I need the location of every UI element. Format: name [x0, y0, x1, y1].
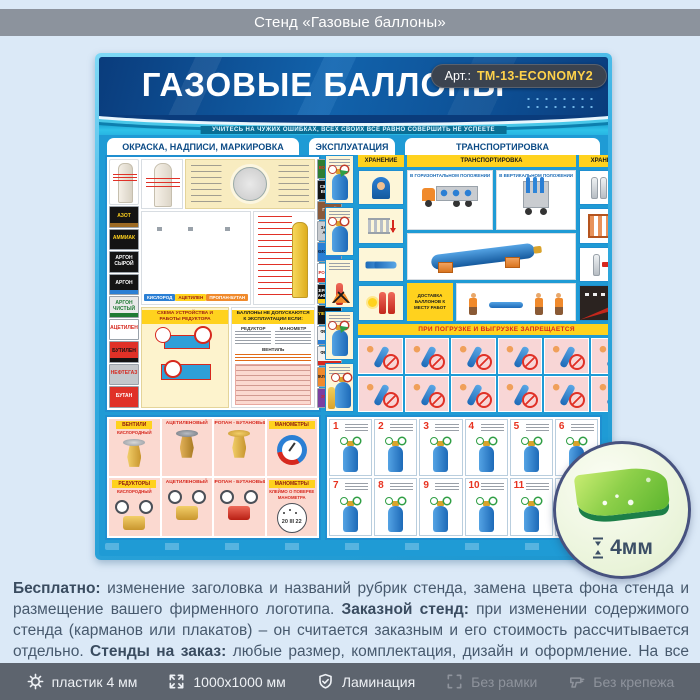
prohibition-cell	[544, 376, 589, 412]
gas-label-text: АРГОН ЧИСТЫЙ	[111, 301, 137, 313]
gas-label: БУТИЛЕН	[109, 341, 139, 363]
section-tabs: ОКРАСКА, НАДПИСИ, МАРКИРОВКА ЭКСПЛУАТАЦИ…	[99, 138, 608, 155]
step-caption-lines	[345, 483, 368, 491]
storage-panel	[579, 170, 608, 205]
cylinder-icon	[183, 231, 198, 293]
cylinder-icon	[220, 231, 235, 293]
cylinder-icon	[524, 506, 539, 532]
wood-block-icon	[438, 262, 453, 273]
gear-icon	[26, 672, 45, 691]
distance-arrow-icon	[392, 220, 394, 232]
step-panel: 5	[510, 419, 553, 477]
poster-motto: УЧИТЕСЬ НА ЧУЖИХ ОШИБКАХ, ВСЕХ СВОИХ ВСЁ…	[200, 126, 507, 134]
gas-label-stripe	[110, 380, 138, 384]
horizontal-title: В ГОРИЗОНТАЛЬНОМ ПОЛОЖЕНИИ	[410, 173, 490, 178]
passport-stamp-diagram	[185, 159, 315, 209]
thickness-icon	[591, 537, 605, 559]
inspection-diagram	[253, 211, 315, 305]
gas-label-stripe	[110, 245, 138, 249]
worker-icon	[534, 293, 543, 317]
gas-label-stripe	[110, 403, 138, 407]
operation-panel	[325, 207, 354, 256]
gas-label-text: АЗОТ	[117, 214, 131, 220]
cylinder-caption: АЦЕТИЛЕН	[175, 294, 206, 301]
cylinder-icon	[524, 446, 539, 472]
gas-label-text: НЕФТЕГАЗ	[111, 371, 138, 377]
step-caption-lines	[571, 424, 594, 432]
step-number: 1	[333, 421, 339, 432]
gas-label-text: БУТИЛЕН	[112, 349, 136, 355]
cylinder-caption: ПРОПАН-БУТАН	[206, 294, 248, 301]
step-number: 11	[514, 480, 525, 491]
scheme-title: СХЕМА УСТРОЙСТВА И РАБОТЫ РЕДУКТОРА	[142, 310, 228, 324]
storage-panel	[579, 208, 608, 243]
expand-icon	[167, 672, 186, 691]
equipment-title: АЦЕТИЛЕНОВЫЙ	[166, 480, 208, 485]
verification-stamp-icon: 20 III 22	[277, 503, 307, 533]
cylinder-on-blocks-row	[407, 233, 576, 280]
prohibition-cell	[591, 338, 608, 374]
cylinder-icon	[479, 446, 494, 472]
worker-icon	[469, 293, 478, 317]
poster-inner: ГАЗОВЫЕ БАЛЛОНЫ Арт.:ТМ-13-ECONOMY2 УЧИТ…	[99, 57, 608, 556]
cylinder-icon	[388, 506, 403, 532]
gas-label: АЦЕТИЛЕН	[109, 319, 139, 341]
step-panel: 2	[374, 419, 417, 477]
page-title: Стенд «Газовые баллоны»	[0, 9, 700, 36]
warning-lines	[235, 354, 310, 362]
gas-label-text: АРГОН СЫРОЙ	[111, 256, 137, 268]
step-number: 4	[469, 421, 475, 432]
rules-col-valve: ВЕНТИЛЬ	[262, 347, 284, 352]
step-caption-lines	[526, 483, 549, 491]
truck-icon	[422, 181, 478, 207]
vertical-transport-panel: В ВЕРТИКАЛЬНОМ ПОЛОЖЕНИИ	[496, 170, 576, 230]
step-caption-lines	[390, 424, 413, 432]
gas-label-text: АРГОН	[115, 281, 132, 287]
reducer-diagram-icon	[148, 326, 222, 405]
valve-icon	[177, 430, 197, 458]
gas-label-text: АММИАК	[113, 236, 135, 242]
cylinder-icon	[332, 226, 348, 252]
spec-mounting: Без крепежа	[567, 672, 674, 691]
thickness-value: 4мм	[610, 536, 653, 560]
gas-label-stripe	[110, 358, 138, 362]
cylinder-figure: АЦЕТИЛЕН	[175, 231, 206, 301]
gas-label-stripe	[110, 313, 138, 317]
step-number: 2	[378, 421, 384, 432]
storage-column-left	[358, 170, 404, 321]
vertical-title: В ВЕРТИКАЛЬНОМ ПОЛОЖЕНИИ	[499, 173, 573, 178]
equipment-subtitle: КЛЕЙМО О ПОВЕРКЕ МАНОМЕТРА	[267, 489, 318, 499]
equipment-subtitle: КИСЛОРОДНЫЙ	[117, 489, 152, 494]
equipment-panel-reducers: РЕДУКТОРЫ КИСЛОРОДНЫЙ	[109, 478, 160, 536]
cylinder-icon	[328, 387, 335, 409]
frame-corners-icon	[445, 672, 464, 691]
cylinder-icon	[600, 177, 607, 199]
step-number: 8	[378, 480, 384, 491]
spec-frame-label: Без рамки	[471, 674, 537, 690]
spec-lamination-label: Ламинация	[342, 674, 415, 690]
article-value: ТМ-13-ECONOMY2	[477, 69, 593, 83]
gas-label-stripe	[110, 335, 138, 339]
storage-bar-left: ХРАНЕНИЕ	[358, 155, 404, 167]
rules-col-manometer: МАНОМЕТР	[275, 326, 311, 331]
reducer-icon	[114, 500, 154, 530]
equipment-title: МАНОМЕТРЫ	[269, 421, 315, 429]
cylinder-dimensions-icon	[109, 159, 139, 205]
spec-material-label: пластик 4 мм	[52, 674, 138, 690]
drill-icon	[567, 672, 586, 691]
cylinder-inscription-icon	[141, 159, 183, 209]
cylinder-icon	[593, 254, 600, 276]
prohibition-cell	[451, 338, 496, 374]
cylinder-figure: КИСЛОРОД	[144, 231, 175, 301]
cylinder-on-blocks-panel	[407, 233, 576, 280]
tab-transportation: ТРАНСПОРТИРОВКА	[405, 138, 600, 155]
storage-panel	[358, 247, 404, 282]
cylinder-icon	[332, 330, 348, 356]
step-caption-lines	[435, 424, 458, 432]
storage-panel	[579, 247, 608, 282]
cylinder-types-row: КИСЛОРОД АЦЕТИЛЕН ПРОПАН-БУТ	[141, 211, 315, 305]
prohibition-cell	[358, 376, 403, 412]
forbidden-bar: ПРИ ПОГРУЗКЕ И ВЫГРУЗКЕ ЗАПРЕЩАЕТСЯ	[358, 324, 608, 335]
step-panel: 4	[465, 419, 508, 477]
cylinder-trio: КИСЛОРОД АЦЕТИЛЕН ПРОПАН-БУТ	[141, 211, 251, 305]
gas-label: АРГОН СЫРОЙ	[109, 251, 139, 273]
description-segment: Бесплатно:	[13, 580, 101, 597]
transport-bars: ХРАНЕНИЕ ТРАНСПОРТИРОВКА ХРАНЕНИЕ	[358, 155, 608, 167]
marking-row	[141, 159, 315, 209]
description-segment: Заказной стенд:	[342, 601, 469, 618]
delivery-row: ДОСТАВКА БАЛЛОНОВ К МЕСТУ РАБОТ	[407, 283, 576, 321]
reducer-icon	[167, 490, 207, 520]
step-caption-lines	[435, 483, 458, 491]
operation-panel	[325, 363, 354, 412]
cylinder-icon	[335, 382, 351, 408]
step-caption-lines	[481, 483, 504, 491]
step-panel: 8	[374, 478, 417, 536]
gas-label: АРГОН	[109, 274, 139, 296]
equipment-title: РЕДУКТОРЫ	[112, 480, 156, 488]
equipment-panel-acetylene-valve: АЦЕТИЛЕНОВЫЙ	[162, 419, 213, 477]
bottom-strip: ВЕНТИЛИ КИСЛОРОДНЫЙ АЦЕТИЛЕНОВЫЙ ПРОПАН …	[105, 415, 602, 540]
step-number: 5	[514, 421, 520, 432]
cylinder-icon	[375, 261, 397, 268]
cylinder-icon	[343, 506, 358, 532]
equipment-panel-stamp: МАНОМЕТРЫ КЛЕЙМО О ПОВЕРКЕ МАНОМЕТРА 20 …	[267, 478, 318, 536]
prohibition-cell	[405, 338, 450, 374]
stretcher-cylinder-icon	[489, 302, 523, 308]
operation-panel	[325, 259, 354, 308]
thickness-badge: 4мм	[553, 441, 691, 579]
rules-title: БАЛЛОНЫ НЕ ДОПУСКАЮТСЯ К ЭКСПЛУАТАЦИИ ЕС…	[232, 310, 314, 324]
transport-body: В ГОРИЗОНТАЛЬНОМ ПОЛОЖЕНИИ В ВЕРТИКАЛЬНО…	[358, 170, 608, 321]
spec-bar: пластик 4 мм 1000x1000 мм Ламинация Без …	[0, 663, 700, 700]
manometer-icon	[277, 435, 307, 465]
step-panel: 11	[510, 478, 553, 536]
step-panel: 10	[465, 478, 508, 536]
cylinder-icon	[433, 506, 448, 532]
gas-label-stripe	[110, 223, 138, 227]
scheme-rules-row: СХЕМА УСТРОЙСТВА И РАБОТЫ РЕДУКТОРА БАЛЛ…	[141, 307, 315, 408]
spec-lamination: Ламинация	[316, 672, 415, 691]
gas-label-text: БУТАН	[116, 394, 133, 400]
storage-panel	[358, 170, 404, 205]
workers-panel	[456, 283, 576, 321]
gas-label: АРГОН ЧИСТЫЙ	[109, 296, 139, 318]
pressure-table	[235, 364, 310, 405]
truck-row: В ГОРИЗОНТАЛЬНОМ ПОЛОЖЕНИИ В ВЕРТИКАЛЬНО…	[407, 170, 576, 230]
tab-operation: ЭКСПЛУАТАЦИЯ	[309, 138, 395, 155]
transport-center: В ГОРИЗОНТАЛЬНОМ ПОЛОЖЕНИИ В ВЕРТИКАЛЬНО…	[407, 170, 576, 321]
storage-bar-right: ХРАНЕНИЕ	[579, 155, 608, 167]
gas-label: НЕФТЕГАЗ	[109, 364, 139, 386]
gas-label-stripe	[110, 290, 138, 294]
step-caption-lines	[345, 424, 368, 432]
prohibition-cell	[451, 376, 496, 412]
rules-panel: БАЛЛОНЫ НЕ ДОПУСКАЮТСЯ К ЭКСПЛУАТАЦИИ ЕС…	[231, 307, 315, 408]
cylinder-figure: ПРОПАН-БУТАН	[206, 231, 248, 301]
equipment-title: АЦЕТИЛЕНОВЫЙ	[166, 421, 208, 426]
rules-columns: РЕДУКТОР МАНОМЕТР	[235, 326, 310, 345]
prohibition-cell	[498, 376, 543, 412]
radiator-icon	[368, 218, 390, 234]
step-panel: 1	[329, 419, 372, 477]
section-transport: ХРАНЕНИЕ ТРАНСПОРТИРОВКА ХРАНЕНИЕ	[358, 155, 608, 412]
cylinder-icon	[152, 231, 167, 293]
gas-labels-left: АЗОТ АММИАК АРГОН СЫРОЙ	[109, 159, 139, 408]
cylinder-icon	[388, 446, 403, 472]
valve-icon	[124, 439, 144, 467]
reducer-icon	[219, 490, 259, 520]
reducer-scheme-panel: СХЕМА УСТРОЙСТВА И РАБОТЫ РЕДУКТОРА	[141, 307, 229, 408]
step-number: 7	[333, 480, 339, 491]
crate-icon	[588, 214, 608, 238]
step-panel: 9	[419, 478, 462, 536]
cylinder-icon	[379, 292, 386, 314]
step-panel: 3	[419, 419, 462, 477]
spec-mounting-label: Без крепежа	[593, 674, 674, 690]
prohibition-cell	[405, 376, 450, 412]
step-caption-lines	[390, 483, 413, 491]
equipment-block: ВЕНТИЛИ КИСЛОРОДНЫЙ АЦЕТИЛЕНОВЫЙ ПРОПАН …	[105, 415, 321, 540]
header-swoosh: УЧИТЕСЬ НА ЧУЖИХ ОШИБКАХ, ВСЕХ СВОИХ ВСЁ…	[99, 115, 608, 135]
gas-label-stripe	[110, 268, 138, 272]
prohibition-grid	[358, 338, 608, 412]
step-number: 10	[469, 480, 480, 491]
step-caption-lines	[481, 424, 504, 432]
transport-bar: ТРАНСПОРТИРОВКА	[407, 155, 576, 167]
article-badge: Арт.:ТМ-13-ECONOMY2	[431, 64, 607, 88]
coloring-center: КИСЛОРОД АЦЕТИЛЕН ПРОПАН-БУТ	[141, 159, 315, 408]
cylinder-icon	[433, 446, 448, 472]
article-label: Арт.:	[445, 69, 471, 83]
storage-panel	[358, 285, 404, 320]
truck-rear-icon	[523, 181, 549, 215]
gas-label-text: АЦЕТИЛЕН	[110, 326, 138, 332]
plastic-sheet-icon	[574, 465, 671, 520]
gas-label: АЗОТ	[109, 206, 139, 228]
spec-size-label: 1000x1000 мм	[193, 674, 285, 690]
equipment-title: ВЕНТИЛИ	[116, 421, 152, 429]
cylinder-icon	[343, 446, 358, 472]
cylinder-icon	[479, 506, 494, 532]
spec-size: 1000x1000 мм	[167, 672, 285, 691]
main-row: АЗОТ АММИАК АРГОН СЫРОЙ	[105, 155, 602, 412]
cylinder-caption: КИСЛОРОД	[144, 294, 175, 301]
horizontal-transport-panel: В ГОРИЗОНТАЛЬНОМ ПОЛОЖЕНИИ	[407, 170, 493, 230]
spec-frame: Без рамки	[445, 672, 537, 691]
operation-panel	[325, 311, 354, 360]
equipment-panel-acetylene-reducer: АЦЕТИЛЕНОВЫЙ	[162, 478, 213, 536]
equipment-panel-manometers: МАНОМЕТРЫ	[267, 419, 318, 477]
description-segment: Стенды на заказ:	[90, 643, 226, 660]
step-number: 9	[423, 480, 429, 491]
sun-icon	[368, 298, 377, 307]
step-caption-lines	[526, 424, 549, 432]
equipment-title: МАНОМЕТРЫ	[269, 480, 315, 488]
cylinder-icon	[332, 174, 348, 200]
operation-panel	[325, 155, 354, 204]
cylinder-icon	[388, 292, 395, 314]
worker-icon	[554, 293, 563, 317]
ramp-panel	[579, 285, 608, 320]
stamp-date: 20 III 22	[282, 519, 302, 525]
step-panel: 7	[329, 478, 372, 536]
storage-panel	[358, 208, 404, 243]
prohibition-cell	[358, 338, 403, 374]
step-number: 6	[559, 421, 565, 432]
gas-label: БУТАН	[109, 386, 139, 408]
equipment-panel-propane-reducer: ПРОПАН - БУТАНОВЫЙ	[214, 478, 265, 536]
storage-column-right	[579, 170, 608, 321]
stand-poster: ГАЗОВЫЕ БАЛЛОНЫ Арт.:ТМ-13-ECONOMY2 УЧИТ…	[95, 53, 612, 560]
prohibition-cell	[498, 338, 543, 374]
gas-label: АММИАК	[109, 229, 139, 251]
fire-prohibited-icon	[332, 287, 350, 303]
text-lines	[275, 331, 311, 345]
text-lines	[235, 331, 271, 345]
prohibition-cell	[591, 376, 608, 412]
step-number: 3	[423, 421, 429, 432]
poster-footer-band	[105, 543, 602, 550]
equipment-panel-propane-valve: ПРОПАН - БУТАНОВЫЙ	[214, 419, 265, 477]
section-operation	[325, 155, 354, 412]
spec-material: пластик 4 мм	[26, 672, 138, 691]
wood-block-icon	[505, 257, 520, 268]
tab-coloring-marking: ОКРАСКА, НАДПИСИ, МАРКИРОВКА	[107, 138, 299, 155]
equipment-subtitle: КИСЛОРОДНЫЙ	[117, 430, 152, 435]
equipment-title: ПРОПАН - БУТАНОВЫЙ	[214, 480, 265, 485]
red-tag-icon	[602, 262, 608, 267]
thickness-value-row: 4мм	[556, 536, 688, 560]
equipment-panel-valves: ВЕНТИЛИ КИСЛОРОДНЫЙ	[109, 419, 160, 477]
section-coloring: АЗОТ АММИАК АРГОН СЫРОЙ	[105, 155, 321, 412]
equipment-title: ПРОПАН - БУТАНОВЫЙ	[214, 421, 265, 426]
valve-icon	[229, 430, 249, 458]
delivery-title: ДОСТАВКА БАЛЛОНОВ К МЕСТУ РАБОТ	[407, 283, 453, 321]
poster-content: АЗОТ АММИАК АРГОН СЫРОЙ	[105, 155, 602, 550]
cylinder-icon	[591, 177, 598, 199]
shield-check-icon	[316, 672, 335, 691]
prohibition-cell	[544, 338, 589, 374]
worker-icon	[372, 177, 390, 199]
